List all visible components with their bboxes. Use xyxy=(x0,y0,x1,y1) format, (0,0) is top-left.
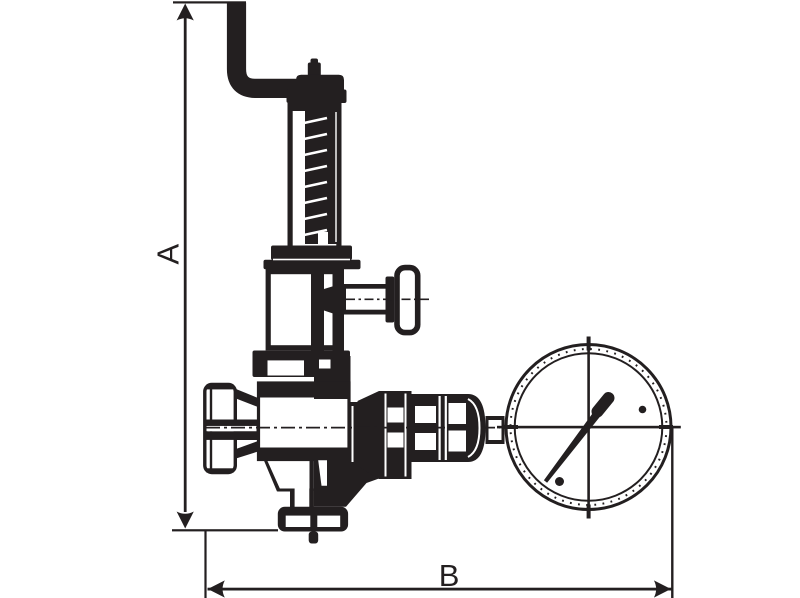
svg-text:A: A xyxy=(151,244,186,265)
svg-text:B: B xyxy=(439,558,460,593)
